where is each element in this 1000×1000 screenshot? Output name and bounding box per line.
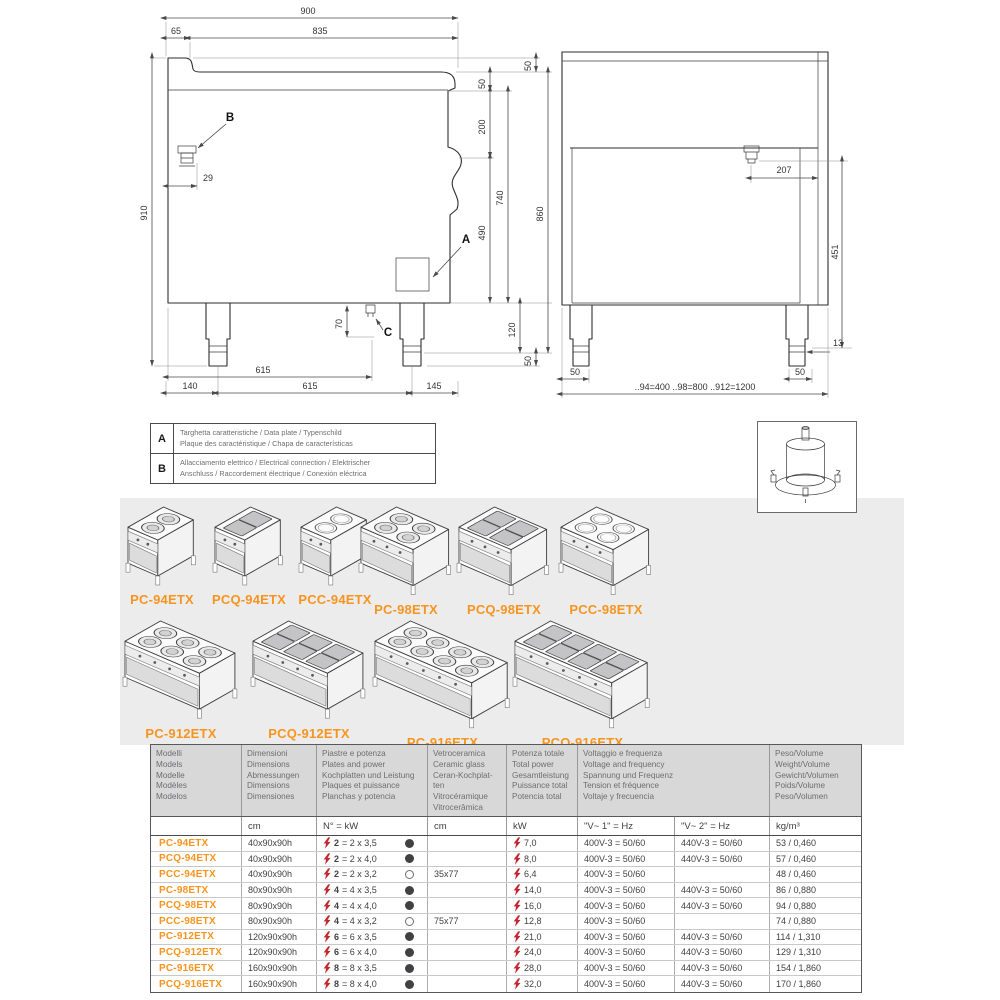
control-knob — [578, 676, 581, 679]
plate-type-indicator — [405, 870, 414, 879]
front-elevation-drawing: 207 451 13 50 50 ..94=400 ..98=800 ..912… — [562, 52, 852, 398]
control-knob — [471, 540, 474, 543]
dim-900: 900 — [300, 6, 315, 16]
leg — [559, 563, 563, 572]
product-thumbnail — [125, 504, 199, 589]
unit-dimensions: cm — [242, 817, 317, 835]
dimensions-cell: 160x90x90h — [242, 976, 317, 992]
weight-cell: 94 / 0,880 — [770, 898, 861, 913]
table-row: PCC-98ETX80x90x90h4= 4 x 3,275x7712,8400… — [151, 914, 861, 930]
table-row: PC-912ETX120x90x90h6= 6 x 3,521,0400V-3 … — [151, 930, 861, 946]
col-header-dimensions: Dimensioni Dimensions Abmessungen Dimens… — [242, 745, 317, 816]
leg — [191, 556, 195, 565]
control-knob — [146, 543, 149, 546]
table-row: PCQ-916ETX160x90x90h8= 8 x 4,032,0400V-3… — [151, 976, 861, 992]
product-thumbnail — [212, 504, 286, 589]
plates-cell: 2= 2 x 3,5 — [317, 836, 428, 851]
leg — [373, 677, 377, 686]
voltage1-cell: 400V-3 = 50/60 — [578, 898, 675, 913]
control-knob — [153, 661, 156, 664]
dim-835: 835 — [312, 26, 327, 36]
dimensions-cell: 120x90x90h — [242, 930, 317, 945]
weight-cell: 129 / 1,310 — [770, 945, 861, 960]
plate-type-indicator — [405, 901, 414, 910]
product-thumbnail — [372, 618, 513, 732]
plate-type-indicator — [405, 886, 414, 895]
lightning-icon — [323, 931, 331, 943]
weight-cell: 154 / 1,860 — [770, 961, 861, 976]
voltage2-cell: 440V-3 = 50/60 — [675, 930, 770, 945]
dim-50-front: 50 — [477, 79, 487, 89]
plate-type-indicator — [405, 917, 414, 926]
control-knob — [530, 655, 533, 658]
dimensions-cell: 80x90x90h — [242, 914, 317, 929]
plates-cell: 4= 4 x 4,0 — [317, 898, 428, 913]
product-PC-916ETX: PC-916ETX — [372, 618, 513, 750]
power-cell: 32,0 — [507, 976, 578, 992]
product-PCQ-912ETX: PCQ-912ETX — [250, 618, 368, 741]
product-thumbnail — [558, 504, 654, 599]
unit-model — [151, 817, 242, 835]
dim-140: 140 — [182, 381, 197, 391]
leg — [278, 556, 282, 565]
legend-row-b: B Allacciamento elettrico / Electrical c… — [151, 454, 435, 483]
col-header-plates: Piastre e potenza Plates and power Kochp… — [317, 745, 428, 816]
dim-50-bottom: 50 — [523, 356, 533, 366]
ceramic-cell — [428, 883, 507, 898]
control-knob — [373, 540, 376, 543]
leg — [325, 709, 329, 718]
leg — [243, 576, 247, 585]
col-header-weight: Peso/Volume Weight/Volume Gewicht/Volume… — [770, 745, 861, 816]
product-PCQ-94ETX: PCQ-94ETX — [212, 504, 286, 607]
plates-cell: 8= 8 x 3,5 — [317, 961, 428, 976]
unit-power: kW — [507, 817, 578, 835]
leg — [299, 563, 303, 572]
callout-c: C — [384, 327, 392, 339]
ceramic-cell — [428, 945, 507, 960]
product-PC-912ETX: PC-912ETX — [122, 618, 240, 741]
voltage1-cell: 400V-3 = 50/60 — [578, 867, 675, 882]
voltage2-cell: 440V-3 = 50/60 — [675, 976, 770, 992]
leg — [611, 586, 615, 595]
dimensions-cell: 160x90x90h — [242, 961, 317, 976]
model-cell: PC-94ETX — [151, 836, 242, 851]
leg — [126, 563, 130, 572]
dimensions-cell: 80x90x90h — [242, 898, 317, 913]
callout-a: A — [462, 234, 470, 246]
power-cell: 21,0 — [507, 930, 578, 945]
leg — [610, 719, 614, 728]
plate-type-indicator — [405, 839, 414, 848]
leg — [123, 677, 127, 686]
legend-b-line2: Anschluss / Raccordement électrique / Co… — [180, 469, 429, 480]
leg — [156, 576, 160, 585]
control-knob — [310, 539, 313, 542]
voltage1-cell: 400V-3 = 50/60 — [578, 883, 675, 898]
leg — [513, 677, 517, 686]
model-cell: PCQ-916ETX — [151, 976, 242, 992]
unit-voltage2: "V~ 2" = Hz — [675, 817, 770, 835]
product-thumbnail — [250, 618, 368, 723]
spec-table-units-row: cm N° = kW cm kW "V~ 1" = Hz "V~ 2" = Hz… — [151, 817, 861, 836]
model-cell: PC-98ETX — [151, 883, 242, 898]
leg — [411, 586, 415, 595]
control-knob — [406, 662, 409, 665]
dim-910: 910 — [139, 205, 149, 220]
leg — [545, 565, 549, 574]
voltage1-cell: 400V-3 = 50/60 — [578, 836, 675, 851]
control-knob — [484, 546, 487, 549]
lightning-icon — [513, 978, 521, 990]
power-cell: 8,0 — [507, 852, 578, 867]
table-row: PC-98ETX80x90x90h4= 4 x 3,514,0400V-3 = … — [151, 883, 861, 899]
product-model-label: PCQ-912ETX — [268, 726, 349, 741]
electrical-connector — [178, 146, 196, 166]
dimensions-cell: 40x90x90h — [242, 852, 317, 867]
power-cell: 12,8 — [507, 914, 578, 929]
product-model-label: PCQ-94ETX — [212, 592, 286, 607]
legend-a-line2: Plaque des caractéristique / Chapa de ca… — [180, 439, 429, 450]
control-knob — [296, 668, 299, 671]
product-thumbnail — [456, 504, 552, 599]
control-knob — [233, 543, 236, 546]
dim-615-inner: 615 — [255, 365, 270, 375]
control-knob — [267, 655, 270, 658]
weight-cell: 74 / 0,880 — [770, 914, 861, 929]
col-header-models: Modelli Models Modelle Modèles Modelos — [151, 745, 242, 816]
voltage2-cell: 440V-3 = 50/60 — [675, 883, 770, 898]
ceramic-cell — [428, 836, 507, 851]
legend-a-line1: Targhetta caratteristiche / Data plate /… — [180, 428, 429, 439]
control-knob — [599, 551, 602, 554]
plates-cell: 6= 6 x 4,0 — [317, 945, 428, 960]
product-model-label: PC-98ETX — [374, 602, 438, 617]
lightning-icon — [513, 915, 521, 927]
control-knob — [281, 661, 284, 664]
product-model-label: PC-94ETX — [130, 592, 194, 607]
control-knob — [586, 546, 589, 549]
plate-type-indicator — [405, 932, 414, 941]
unit-weight: kg/m³ — [770, 817, 861, 835]
ceramic-cell — [428, 898, 507, 913]
plate-type-indicator — [405, 854, 414, 863]
voltage2-cell — [675, 867, 770, 882]
dimensions-cell: 40x90x90h — [242, 867, 317, 882]
lightning-icon — [323, 900, 331, 912]
voltage2-cell: 440V-3 = 50/60 — [675, 898, 770, 913]
drain-fitting — [366, 305, 375, 317]
control-knob — [311, 674, 314, 677]
ceramic-cell — [428, 976, 507, 992]
power-cell: 24,0 — [507, 945, 578, 960]
control-knob — [497, 551, 500, 554]
table-row: PC-916ETX160x90x90h8= 8 x 3,528,0400V-3 … — [151, 961, 861, 977]
control-knob — [573, 540, 576, 543]
dim-13: 13 — [833, 338, 843, 348]
model-cell: PCQ-912ETX — [151, 945, 242, 960]
power-cell: 16,0 — [507, 898, 578, 913]
leg — [447, 565, 451, 574]
dim-65: 65 — [171, 26, 181, 36]
dim-50-top: 50 — [523, 61, 533, 71]
product-thumbnail — [358, 504, 454, 599]
plates-cell: 2= 2 x 4,0 — [317, 852, 428, 867]
weight-cell: 57 / 0,460 — [770, 852, 861, 867]
voltage2-cell: 440V-3 = 50/60 — [675, 945, 770, 960]
lightning-icon — [323, 946, 331, 958]
dim-29: 29 — [203, 173, 213, 183]
voltage1-cell: 400V-3 = 50/60 — [578, 930, 675, 945]
model-cell: PC-916ETX — [151, 961, 242, 976]
spec-table-header: Modelli Models Modelle Modèles Modelos D… — [151, 745, 861, 817]
control-knob — [546, 662, 549, 665]
leg — [457, 563, 461, 572]
control-knob — [399, 551, 402, 554]
leg — [647, 565, 651, 574]
ceramic-cell: 75x77 — [428, 914, 507, 929]
product-PC-94ETX: PC-94ETX — [125, 504, 199, 607]
dim-860: 860 — [535, 206, 545, 221]
control-knob — [168, 668, 171, 671]
power-cell: 7,0 — [507, 836, 578, 851]
control-knob — [319, 543, 322, 546]
plates-cell: 4= 4 x 3,2 — [317, 914, 428, 929]
product-PCC-98ETX: PCC-98ETX — [558, 504, 654, 617]
lightning-icon — [323, 837, 331, 849]
lightning-icon — [323, 853, 331, 865]
voltage2-cell: 440V-3 = 50/60 — [675, 961, 770, 976]
unit-plates: N° = kW — [317, 817, 428, 835]
leg — [361, 689, 365, 698]
table-row: PCQ-94ETX40x90x90h2= 2 x 4,08,0400V-3 = … — [151, 852, 861, 868]
voltage2-cell: 440V-3 = 50/60 — [675, 836, 770, 851]
ceramic-cell — [428, 852, 507, 867]
dim-50-left: 50 — [570, 367, 580, 377]
control-knob — [438, 676, 441, 679]
product-PC-98ETX: PC-98ETX — [358, 504, 454, 617]
table-row: PCQ-912ETX120x90x90h6= 6 x 4,024,0400V-3… — [151, 945, 861, 961]
dimensions-cell: 80x90x90h — [242, 883, 317, 898]
lightning-icon — [513, 962, 521, 974]
legend-key-a: A — [151, 424, 174, 453]
callout-b: B — [226, 112, 234, 124]
voltage1-cell: 400V-3 = 50/60 — [578, 945, 675, 960]
product-model-label: PCQ-98ETX — [467, 602, 541, 617]
lightning-icon — [323, 962, 331, 974]
power-cell: 28,0 — [507, 961, 578, 976]
side-elevation-drawing: B A C 900 65 835 910 50 200 — [139, 6, 552, 397]
leg — [470, 719, 474, 728]
voltage1-cell: 400V-3 = 50/60 — [578, 852, 675, 867]
control-knob — [183, 674, 186, 677]
model-cell: PC-912ETX — [151, 930, 242, 945]
model-cell: PCC-98ETX — [151, 914, 242, 929]
catalog-page: B A C 900 65 835 910 50 200 — [0, 0, 1000, 1000]
weight-cell: 48 / 0,460 — [770, 867, 861, 882]
spec-table-body: PC-94ETX40x90x90h2= 2 x 3,57,0400V-3 = 5… — [151, 836, 861, 992]
ceramic-cell — [428, 961, 507, 976]
control-knob — [224, 539, 227, 542]
unit-voltage1: "V~ 1" = Hz — [578, 817, 675, 835]
leg — [359, 563, 363, 572]
weight-cell: 53 / 0,460 — [770, 836, 861, 851]
product-thumbnail — [512, 618, 653, 732]
voltage2-cell — [675, 914, 770, 929]
plate-type-indicator — [405, 948, 414, 957]
lightning-icon — [513, 931, 521, 943]
leg — [251, 677, 255, 686]
leg — [213, 563, 217, 572]
control-knob — [390, 655, 393, 658]
model-cell: PCQ-94ETX — [151, 852, 242, 867]
dim-451: 451 — [830, 244, 840, 259]
product-model-label: PC-912ETX — [145, 726, 216, 741]
plate-type-indicator — [405, 980, 414, 989]
dim-615: 615 — [302, 381, 317, 391]
lightning-icon — [513, 946, 521, 958]
plates-cell: 4= 4 x 3,5 — [317, 883, 428, 898]
leg — [505, 699, 509, 708]
unit-ceramic: cm — [428, 817, 507, 835]
voltage1-cell: 400V-3 = 50/60 — [578, 961, 675, 976]
plates-cell: 8= 8 x 4,0 — [317, 976, 428, 992]
legend-key-b: B — [151, 454, 174, 483]
weight-cell: 170 / 1,860 — [770, 976, 861, 992]
electric-plate-component-drawing — [758, 422, 854, 510]
weight-cell: 86 / 0,880 — [770, 883, 861, 898]
control-knob — [594, 683, 597, 686]
table-row: PCQ-98ETX80x90x90h4= 4 x 4,016,0400V-3 =… — [151, 898, 861, 914]
data-plate-square — [396, 258, 429, 291]
model-cell: PCQ-98ETX — [151, 898, 242, 913]
control-knob — [139, 655, 142, 658]
lightning-icon — [323, 978, 331, 990]
dim-200: 200 — [477, 119, 487, 134]
dimensions-cell: 120x90x90h — [242, 945, 317, 960]
leg — [197, 709, 201, 718]
dim-207: 207 — [776, 165, 791, 175]
lightning-icon — [513, 837, 521, 849]
burner-component-box — [757, 421, 857, 513]
dim-740: 740 — [495, 190, 505, 205]
table-row: PCC-94ETX40x90x90h2= 2 x 3,235x776,4400V… — [151, 867, 861, 883]
control-knob — [562, 669, 565, 672]
plates-cell: 6= 6 x 3,5 — [317, 930, 428, 945]
dim-120: 120 — [507, 322, 517, 337]
dim-70: 70 — [334, 319, 344, 329]
power-cell: 6,4 — [507, 867, 578, 882]
control-knob — [454, 683, 457, 686]
product-gallery: PC-94ETXPCQ-94ETXPCC-94ETXPC-98ETXPCQ-98… — [120, 498, 904, 745]
legend-row-a: A Targhetta caratteristiche / Data plate… — [151, 424, 435, 454]
legend-table: A Targhetta caratteristiche / Data plate… — [150, 423, 436, 484]
power-cell: 14,0 — [507, 883, 578, 898]
col-header-ceramic: Vetroceramica Ceramic glass Ceran-Kochpl… — [428, 745, 507, 816]
voltage1-cell: 400V-3 = 50/60 — [578, 914, 675, 929]
model-cell: PCC-94ETX — [151, 867, 242, 882]
leg — [509, 586, 513, 595]
dimensions-cell: 40x90x90h — [242, 836, 317, 851]
plate-type-indicator — [405, 964, 414, 973]
lightning-icon — [323, 884, 331, 896]
col-header-power: Potenza totale Total power Gesamtleistun… — [507, 745, 578, 816]
weight-cell: 114 / 1,310 — [770, 930, 861, 945]
dim-490: 490 — [477, 225, 487, 240]
leg — [645, 699, 649, 708]
dim-50-right: 50 — [795, 367, 805, 377]
ceramic-cell — [428, 930, 507, 945]
lightning-icon — [323, 915, 331, 927]
leg — [233, 689, 237, 698]
legend-b-line1: Allacciamento elettrico / Electrical con… — [180, 458, 429, 469]
col-header-voltage: Voltaggio e frequenza Voltage and freque… — [578, 745, 770, 816]
voltage1-cell: 400V-3 = 50/60 — [578, 976, 675, 992]
control-knob — [386, 546, 389, 549]
product-model-label: PCC-98ETX — [569, 602, 642, 617]
control-knob — [137, 539, 140, 542]
product-PCQ-916ETX: PCQ-916ETX — [512, 618, 653, 750]
dim-overall-widths: ..94=400 ..98=800 ..912=1200 — [635, 382, 756, 392]
product-thumbnail — [122, 618, 240, 723]
technical-drawings: B A C 900 65 835 910 50 200 — [0, 0, 1000, 420]
lightning-icon — [513, 868, 521, 880]
plates-cell: 2= 2 x 3,2 — [317, 867, 428, 882]
product-PCQ-98ETX: PCQ-98ETX — [456, 504, 552, 617]
lightning-icon — [323, 868, 331, 880]
leg — [329, 576, 333, 585]
lightning-icon — [513, 853, 521, 865]
dim-145: 145 — [426, 381, 441, 391]
control-knob — [422, 669, 425, 672]
ceramic-cell: 35x77 — [428, 867, 507, 882]
voltage2-cell: 440V-3 = 50/60 — [675, 852, 770, 867]
table-row: PC-94ETX40x90x90h2= 2 x 3,57,0400V-3 = 5… — [151, 836, 861, 852]
lightning-icon — [513, 884, 521, 896]
spec-table: Modelli Models Modelle Modèles Modelos D… — [150, 744, 862, 993]
lightning-icon — [513, 900, 521, 912]
